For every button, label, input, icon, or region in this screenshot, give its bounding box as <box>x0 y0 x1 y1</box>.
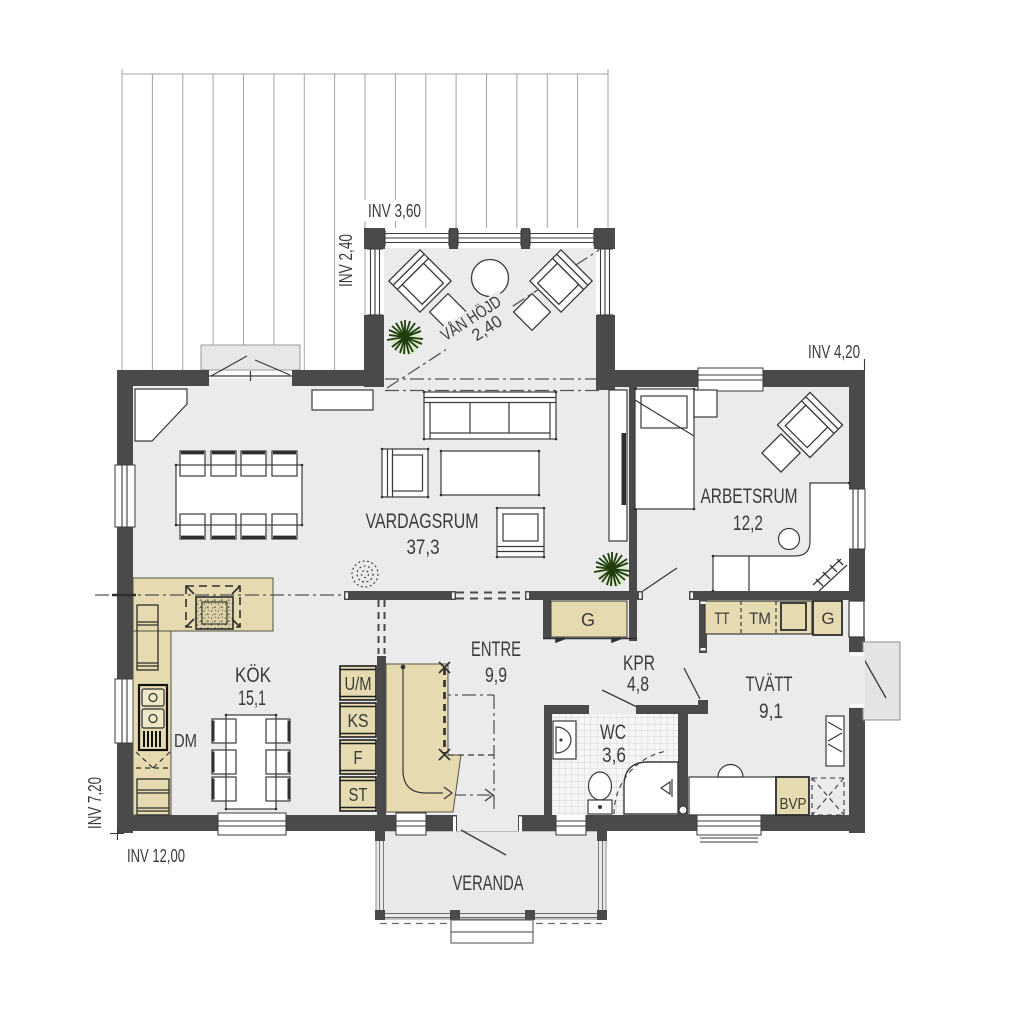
svg-text:4,8: 4,8 <box>627 673 649 696</box>
svg-text:TT: TT <box>715 609 730 628</box>
svg-text:BVP: BVP <box>780 796 807 813</box>
svg-text:TVÄTT: TVÄTT <box>746 673 793 696</box>
svg-text:U/M: U/M <box>345 674 372 694</box>
svg-text:F: F <box>354 748 363 768</box>
svg-text:15,1: 15,1 <box>238 687 266 710</box>
svg-text:KPR: KPR <box>623 652 655 675</box>
svg-text:VERANDA: VERANDA <box>453 872 524 895</box>
svg-text:9,9: 9,9 <box>485 664 507 687</box>
svg-text:12,2: 12,2 <box>733 512 763 535</box>
svg-text:9,1: 9,1 <box>759 700 783 723</box>
svg-text:KS: KS <box>348 711 369 731</box>
svg-text:37,3: 37,3 <box>407 536 440 559</box>
svg-text:G: G <box>821 609 834 628</box>
svg-text:ARBETSRUM: ARBETSRUM <box>701 485 798 508</box>
svg-text:KÖK: KÖK <box>235 664 271 687</box>
svg-text:INV 7,20: INV 7,20 <box>85 777 105 829</box>
svg-text:ENTRE: ENTRE <box>471 638 521 661</box>
svg-text:INV 2,40: INV 2,40 <box>336 234 356 287</box>
svg-text:INV 3,60: INV 3,60 <box>368 201 421 221</box>
svg-text:TM: TM <box>749 609 771 628</box>
svg-text:WC: WC <box>600 721 626 744</box>
svg-text:3,6: 3,6 <box>602 744 626 767</box>
svg-text:G: G <box>581 610 595 630</box>
svg-text:VARDAGSRUM: VARDAGSRUM <box>366 510 479 533</box>
svg-text:ST: ST <box>349 785 368 805</box>
svg-text:DM: DM <box>174 731 197 751</box>
svg-text:INV 4,20: INV 4,20 <box>808 342 860 362</box>
svg-text:INV 12,00: INV 12,00 <box>127 846 185 866</box>
